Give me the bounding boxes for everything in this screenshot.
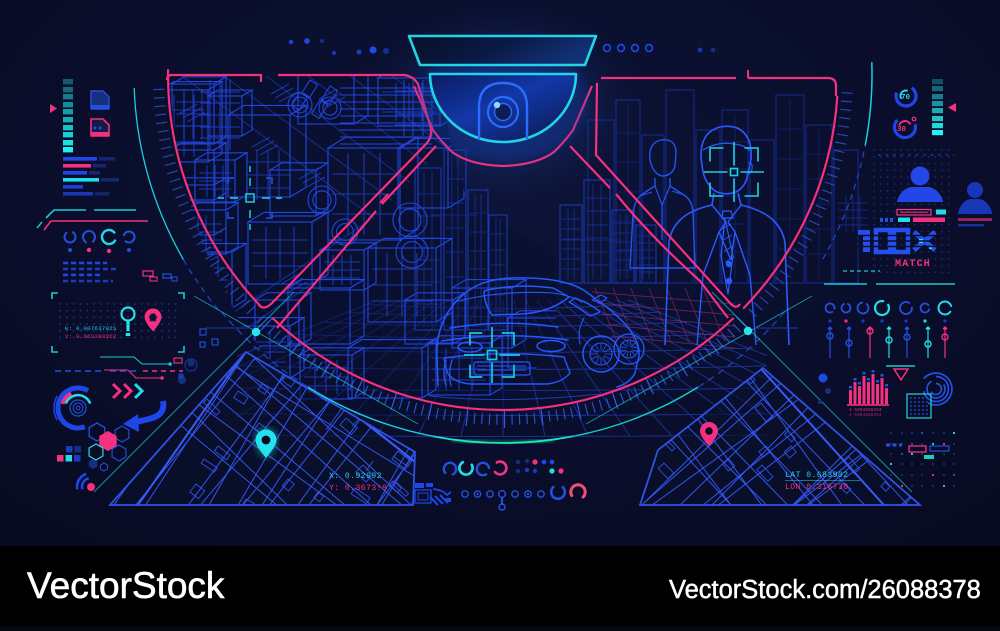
svg-text:LAT 0.683902: LAT 0.683902 — [785, 471, 849, 480]
svg-text:X: 0.92992: X: 0.92992 — [329, 472, 382, 481]
svg-text:VectorStock.com/26088378: VectorStock.com/26088378 — [669, 576, 981, 604]
svg-text:K: 0.00763792S: K: 0.00763792S — [65, 325, 117, 332]
svg-text:LON 0.316738: LON 0.316738 — [785, 483, 849, 492]
svg-text:4 59949384S4: 4 59949384S4 — [849, 412, 882, 418]
svg-text:MATCH: MATCH — [895, 259, 931, 270]
svg-text:70: 70 — [901, 94, 911, 102]
svg-text:VectorStock: VectorStock — [27, 565, 225, 606]
svg-text:Y: 0.3673!9: Y: 0.3673!9 — [329, 484, 387, 493]
svg-text:30: 30 — [897, 126, 907, 134]
svg-text:Y: 0.06S3892O2: Y: 0.06S3892O2 — [65, 333, 117, 340]
